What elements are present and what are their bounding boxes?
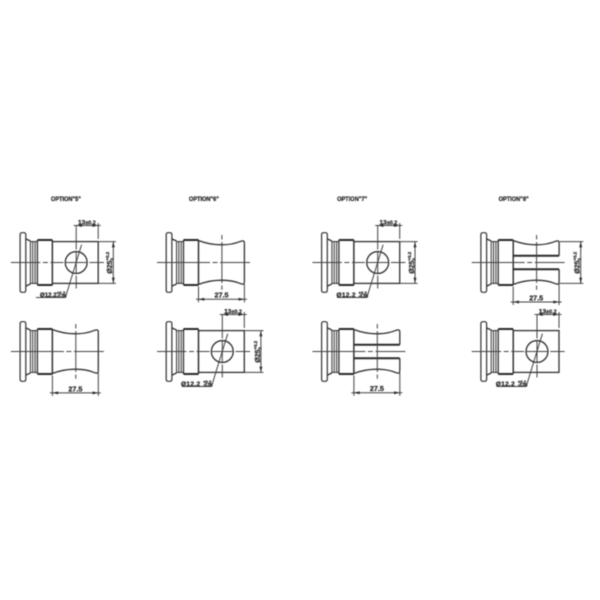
svg-text:Ø25: Ø25 bbox=[575, 260, 582, 273]
svg-text:27.5: 27.5 bbox=[370, 384, 384, 393]
svg-text:OPTION"5": OPTION"5" bbox=[51, 196, 81, 204]
svg-text:13±0.2: 13±0.2 bbox=[224, 308, 242, 315]
svg-text:-0.05: -0.05 bbox=[518, 382, 528, 387]
svg-text:27.5: 27.5 bbox=[68, 384, 82, 393]
svg-text:27.5: 27.5 bbox=[529, 293, 543, 302]
svg-text:0: 0 bbox=[411, 258, 416, 261]
svg-text:Ø12.2: Ø12.2 bbox=[336, 292, 355, 299]
svg-text:0: 0 bbox=[257, 347, 262, 350]
svg-text:Ø12.2: Ø12.2 bbox=[496, 381, 515, 388]
svg-text:OPTION"6": OPTION"6" bbox=[189, 196, 219, 204]
svg-text:13±0.2: 13±0.2 bbox=[78, 219, 96, 226]
svg-text:13±0.2: 13±0.2 bbox=[539, 308, 557, 315]
svg-text:Ø25: Ø25 bbox=[409, 260, 416, 273]
svg-text:-0.05: -0.05 bbox=[359, 293, 369, 298]
svg-text:OPTION"7": OPTION"7" bbox=[337, 196, 367, 204]
svg-text:-0.05: -0.05 bbox=[57, 294, 68, 299]
svg-text:-0.05: -0.05 bbox=[203, 382, 213, 387]
svg-text:Ø25: Ø25 bbox=[107, 260, 114, 273]
svg-text:Ø25: Ø25 bbox=[255, 349, 262, 362]
svg-text:27.5: 27.5 bbox=[215, 291, 229, 300]
svg-text:OPTION"8": OPTION"8" bbox=[499, 196, 529, 204]
svg-text:0: 0 bbox=[577, 258, 582, 261]
svg-text:Ø12.2: Ø12.2 bbox=[40, 292, 57, 299]
svg-text:0: 0 bbox=[110, 258, 115, 261]
svg-text:Ø12.2: Ø12.2 bbox=[181, 381, 200, 388]
svg-text:13±0.2: 13±0.2 bbox=[380, 219, 398, 226]
